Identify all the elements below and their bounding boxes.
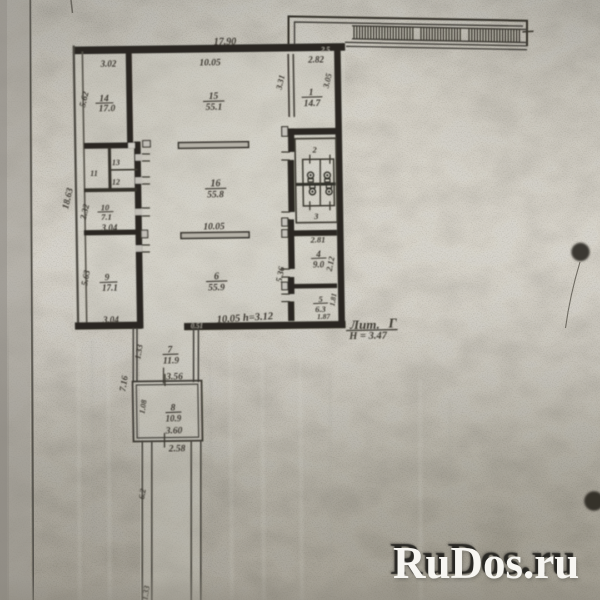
svg-text:1.87: 1.87	[317, 312, 331, 321]
svg-text:11: 11	[90, 169, 98, 178]
svg-text:10.9: 10.9	[165, 413, 181, 423]
svg-text:14.7: 14.7	[304, 99, 322, 109]
svg-text:55.1: 55.1	[206, 103, 223, 113]
svg-text:2.81: 2.81	[310, 235, 326, 245]
svg-text:3.56: 3.56	[165, 373, 183, 383]
svg-text:2: 2	[311, 145, 317, 155]
svg-text:17.90: 17.90	[214, 37, 237, 48]
svg-text:3.60: 3.60	[165, 427, 183, 437]
svg-text:3.04: 3.04	[101, 223, 118, 233]
svg-text:13: 13	[112, 158, 120, 167]
svg-text:9: 9	[105, 273, 110, 283]
svg-text:12: 12	[112, 178, 120, 187]
svg-text:17.0: 17.0	[99, 104, 116, 114]
svg-text:3.02: 3.02	[100, 59, 117, 69]
svg-text:4: 4	[315, 249, 321, 259]
svg-text:55.8: 55.8	[207, 190, 224, 200]
svg-text:55.9: 55.9	[208, 283, 225, 293]
svg-text:7.1: 7.1	[101, 212, 112, 222]
svg-text:0.51: 0.51	[191, 322, 203, 330]
svg-text:10.05: 10.05	[199, 59, 221, 69]
svg-text:11.9: 11.9	[163, 357, 180, 367]
svg-text:3: 3	[313, 211, 319, 221]
svg-text:3.04: 3.04	[102, 315, 119, 325]
svg-text:9.0: 9.0	[313, 259, 325, 269]
svg-text:10.05: 10.05	[203, 222, 225, 232]
svg-text:2.58: 2.58	[168, 445, 186, 455]
svg-text:Н = 3.47: Н = 3.47	[348, 331, 388, 343]
svg-text:17.1: 17.1	[102, 283, 118, 293]
svg-text:16: 16	[210, 178, 220, 189]
svg-text:2.82: 2.82	[307, 54, 324, 64]
svg-text:2.5: 2.5	[320, 46, 330, 54]
